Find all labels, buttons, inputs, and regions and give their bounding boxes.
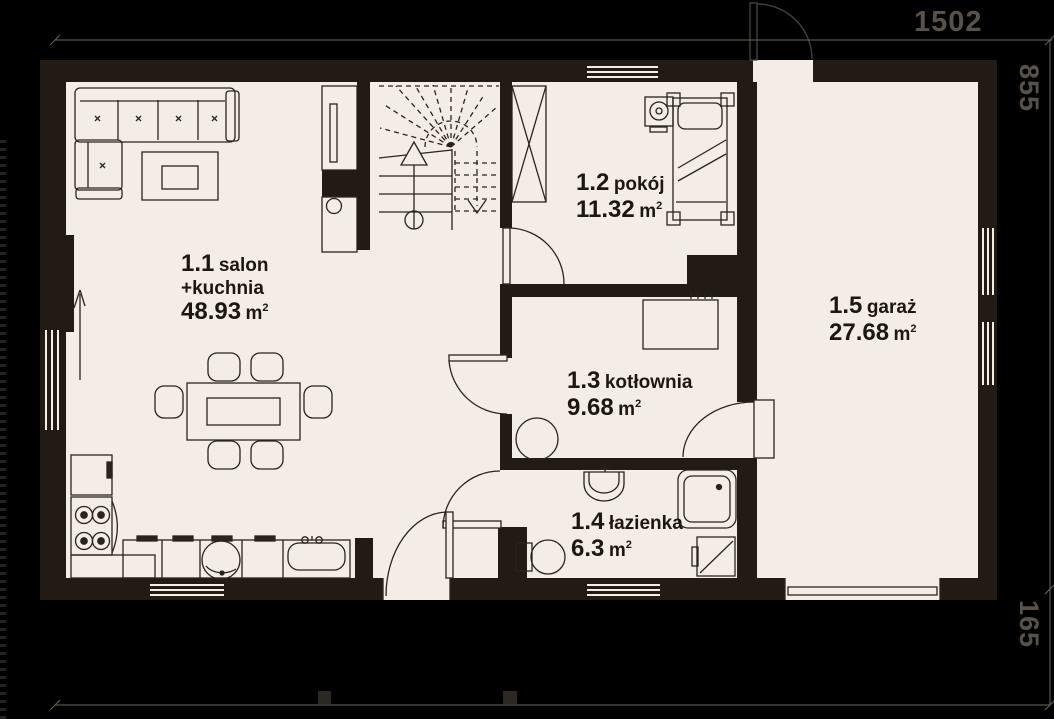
door-kotlownia (449, 355, 507, 414)
coffee-table-icon (142, 152, 218, 200)
nightstand-icon (645, 97, 673, 132)
dimension-width-label: 1502 (914, 6, 983, 39)
dining-table-icon (155, 353, 332, 469)
washing-machine-icon (692, 537, 735, 576)
dimension-height-label: 855 (1013, 64, 1044, 112)
room-label-garaz: 1.5 garaż 27.68 m2 (829, 293, 917, 347)
floorplan-drawing (0, 0, 1054, 719)
floor-plan-page: 1.1 salon +kuchnia 48.93 m2 1.2 pokój 11… (0, 0, 1054, 719)
kitchen-counter-icon (71, 455, 350, 578)
room-label-pokoj: 1.2 pokój 11.32 m2 (576, 170, 665, 224)
door-kotlownia-garage (683, 400, 774, 458)
stairs-icon (379, 85, 499, 230)
boiler-icon (643, 293, 718, 349)
door-garage-pedestrian (750, 3, 812, 60)
wardrobe-icon (512, 86, 546, 202)
water-heater-icon (516, 418, 558, 460)
room-label-lazienka: 1.4 łazienka 6.3 m2 (571, 509, 683, 563)
dimension-offset-label: 165 (1013, 600, 1044, 648)
kitchen-sink-icon (202, 536, 345, 579)
toilet-icon (516, 540, 565, 574)
room-label-salon: 1.1 salon +kuchnia 48.93 m2 (181, 251, 269, 326)
direction-arrow-icon (74, 290, 85, 380)
shower-icon (678, 470, 736, 528)
room-label-kotlownia: 1.3 kotłownia 9.68 m2 (567, 368, 692, 422)
stairs-cabinet-icon (322, 86, 357, 252)
bed-icon (667, 93, 734, 225)
washbasin-icon (584, 465, 624, 501)
door-bedroom (503, 228, 564, 284)
corner-sofa-icon (75, 88, 239, 199)
stove-icon (76, 507, 110, 550)
dimension-lines (50, 35, 1054, 710)
